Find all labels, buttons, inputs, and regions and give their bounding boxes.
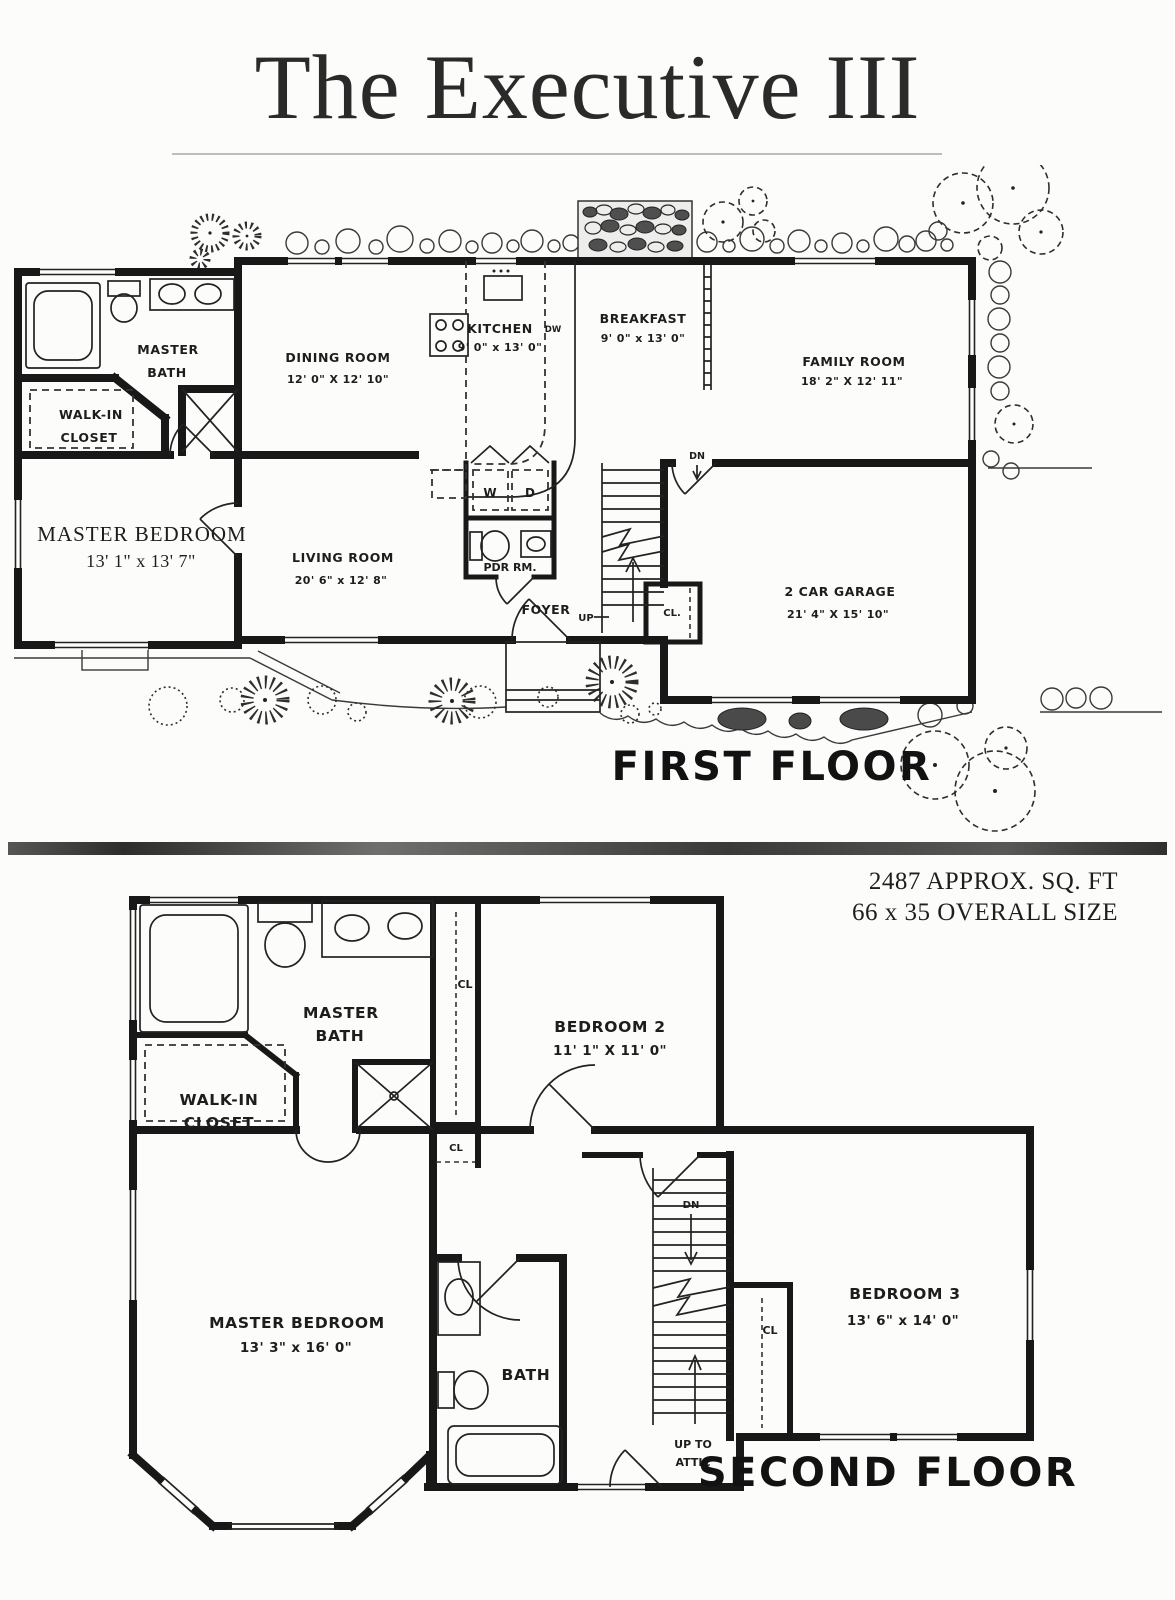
- first-floor-caption: FIRST FLOOR: [612, 744, 933, 790]
- label-master-bedroom: MASTER BEDROOM: [209, 1314, 385, 1332]
- label-closet: CL: [457, 978, 472, 991]
- overall-size: 66 x 35 OVERALL SIZE: [852, 897, 1118, 928]
- second-floor-walls: [133, 900, 1030, 1526]
- label-dryer: D: [525, 486, 535, 500]
- label-closet: CL: [449, 1143, 463, 1154]
- down-arrow-icon: [693, 465, 701, 479]
- label-powder-room: PDR RM.: [483, 561, 536, 574]
- approx-sq-ft: 2487 APPROX. SQ. FT: [852, 866, 1118, 897]
- second-floor-plan: MASTER BATH WALK-IN CLOSET BEDROOM 2 11'…: [0, 865, 1175, 1565]
- floor-plan-document: The Executive III: [0, 0, 1175, 1600]
- first-floor-plan: MASTER BATH WALK-IN CLOSET DINING ROOM 1…: [0, 165, 1175, 841]
- label-bedroom-3: BEDROOM 3: [849, 1285, 960, 1303]
- label-breakfast: BREAKFAST: [600, 311, 687, 326]
- label-down: DN: [689, 451, 705, 462]
- bay-window: [158, 1475, 408, 1529]
- specs-block: 2487 APPROX. SQ. FT 66 x 35 OVERALL SIZE: [852, 866, 1118, 928]
- page-title: The Executive III: [0, 34, 1175, 140]
- label-walk-in-1: WALK-IN: [179, 1091, 258, 1109]
- label-kitchen-dims: 9' 0" x 13' 0": [458, 341, 542, 354]
- door-swing: [530, 1065, 595, 1130]
- shower-icon: [355, 1062, 433, 1130]
- label-closet: CL: [762, 1324, 777, 1337]
- label-closet: CL.: [663, 608, 681, 619]
- double-door-swing: [296, 1130, 360, 1162]
- door-swing: [640, 1155, 700, 1197]
- title-rule: [172, 153, 942, 155]
- label-master-bath-1: MASTER: [137, 342, 198, 357]
- label-bedroom-2-dims: 11' 1" X 11' 0": [553, 1043, 667, 1059]
- down-arrow-icon: [685, 1214, 697, 1264]
- up-arrow-icon: [626, 558, 640, 622]
- label-kitchen: KITCHEN: [467, 321, 533, 336]
- railing: [704, 265, 711, 390]
- label-bedroom-3-dims: 13' 6" x 14' 0": [847, 1313, 959, 1329]
- front-porch: [506, 642, 600, 712]
- label-dining-room-dims: 12' 0" X 12' 10": [287, 373, 389, 386]
- shower-icon: [182, 389, 238, 452]
- toilet-icon: [438, 1372, 454, 1408]
- label-bedroom-2: BEDROOM 2: [554, 1018, 665, 1036]
- label-bath: BATH: [502, 1366, 551, 1384]
- label-walk-in-1: WALK-IN: [59, 407, 123, 422]
- label-foyer: FOYER: [522, 602, 571, 617]
- section-divider: [8, 842, 1167, 855]
- vanity-icon: [322, 901, 433, 957]
- bathtub-icon: [140, 905, 248, 1032]
- label-up: UP: [578, 613, 593, 624]
- sink-icon: [521, 531, 551, 557]
- second-floor-caption: SECOND FLOOR: [698, 1450, 1078, 1496]
- label-down: DN: [683, 1200, 700, 1211]
- refrigerator-icon: [432, 470, 466, 498]
- door-swing: [672, 463, 716, 494]
- label-walk-in-2: CLOSET: [61, 430, 118, 445]
- stairs-first-floor: [602, 463, 664, 633]
- label-garage: 2 CAR GARAGE: [784, 584, 895, 599]
- toilet-icon: [258, 903, 312, 922]
- door-swing: [610, 1450, 662, 1487]
- label-master-bath-2: BATH: [316, 1027, 365, 1045]
- label-family-room-dims: 18' 2" X 12' 11": [801, 375, 903, 388]
- label-master-bedroom: MASTER BEDROOM: [37, 522, 246, 546]
- label-master-bedroom-dims: 13' 3" x 16' 0": [240, 1340, 352, 1356]
- label-living-room: LIVING ROOM: [292, 550, 394, 565]
- label-master-bath-2: BATH: [147, 365, 187, 380]
- stone-patio: [578, 201, 692, 258]
- bifold-door-icon: [471, 446, 549, 463]
- label-garage-dims: 21' 4" X 15' 10": [787, 608, 889, 621]
- label-dishwasher: DW: [545, 325, 562, 335]
- label-family-room: FAMILY ROOM: [802, 354, 905, 369]
- label-master-bedroom-dims: 13' 1" x 13' 7": [86, 551, 196, 571]
- label-breakfast-dims: 9' 0" x 13' 0": [601, 332, 685, 345]
- tree-icon: [929, 165, 1063, 260]
- labels-second-floor: MASTER BATH WALK-IN CLOSET BEDROOM 2 11'…: [179, 978, 1078, 1496]
- walk-in-closet-outline: [145, 1045, 285, 1121]
- label-walk-in-2: CLOSET: [184, 1114, 254, 1132]
- windows-second-floor: [128, 895, 1035, 1492]
- label-living-room-dims: 20' 6" x 12' 8": [295, 574, 388, 587]
- label-master-bath-1: MASTER: [303, 1004, 379, 1022]
- label-dining-room: DINING ROOM: [285, 350, 390, 365]
- label-washer: W: [483, 486, 496, 500]
- oven-icon: [484, 276, 522, 300]
